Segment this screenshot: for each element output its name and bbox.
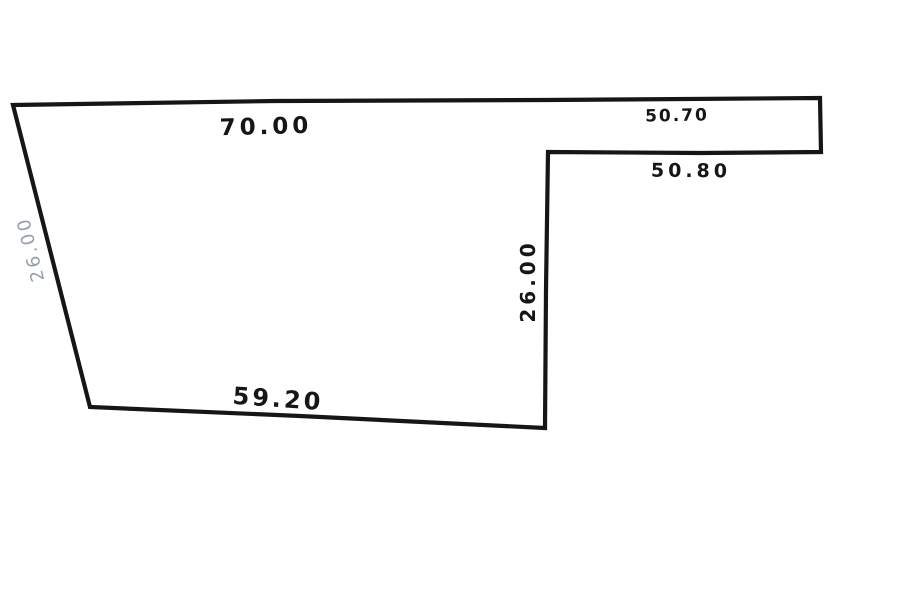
measurement-strip-outer: 50.80 — [651, 160, 731, 183]
measurement-top-edge: 70.00 — [219, 113, 312, 141]
sketch-canvas: 70.00 50.70 50.80 26.00 26.00 59.20 — [0, 0, 919, 610]
parcel-sketch-svg — [0, 0, 919, 610]
measurement-strip-inner: 50.70 — [645, 105, 709, 126]
measurement-middle-edge: 26.00 — [516, 239, 540, 322]
parcel-outline — [13, 98, 821, 428]
